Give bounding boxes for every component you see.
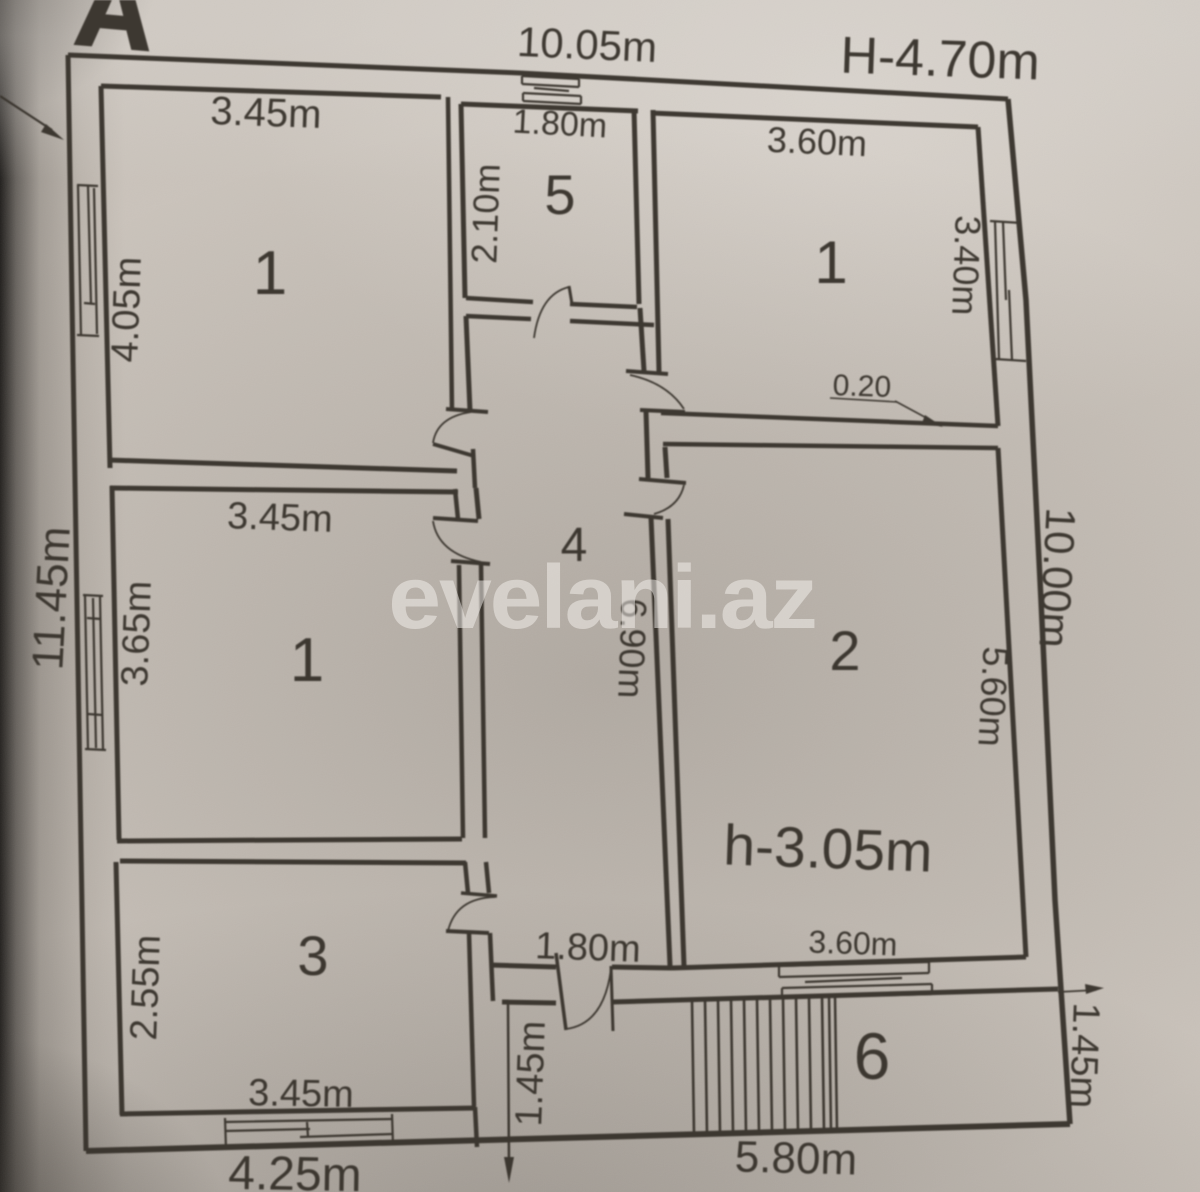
- svg-text:evelani.az: evelani.az: [388, 546, 816, 647]
